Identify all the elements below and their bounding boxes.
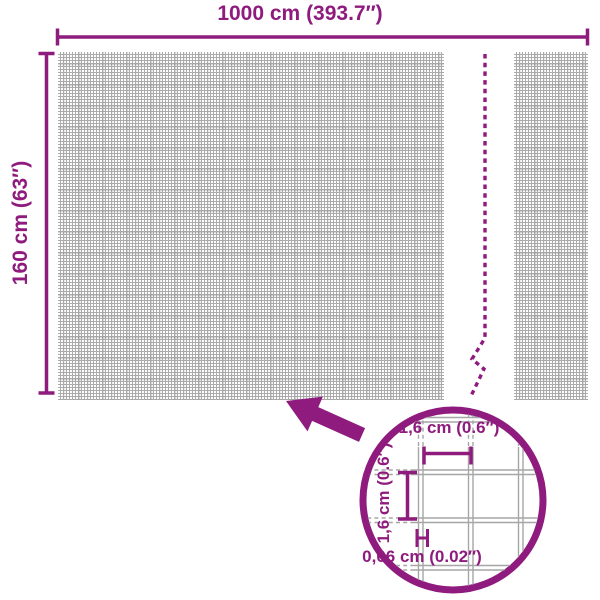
wire-thickness-label: 0,06 cm (0.02″) <box>352 548 492 567</box>
height-dimension-line <box>39 54 55 394</box>
width-dimension-label: 1000 cm (393.7″) <box>150 2 450 25</box>
mesh-cell-height-label: 1,6 cm (0.6″) <box>375 438 397 548</box>
mesh-panel-right <box>514 52 588 400</box>
product-dimension-diagram: 1000 cm (393.7″) 160 cm (63″) 1,6 cm (0.… <box>0 0 600 600</box>
mesh-panel-left <box>58 52 444 400</box>
break-line <box>471 54 485 396</box>
mesh-cell-width-label: 1,6 cm (0.6″) <box>389 419 509 438</box>
diagram-graphics <box>0 0 600 600</box>
height-dimension-label: 160 cm (63″) <box>9 143 33 303</box>
width-dimension-line <box>58 29 588 46</box>
zoom-arrow-icon <box>286 397 365 442</box>
